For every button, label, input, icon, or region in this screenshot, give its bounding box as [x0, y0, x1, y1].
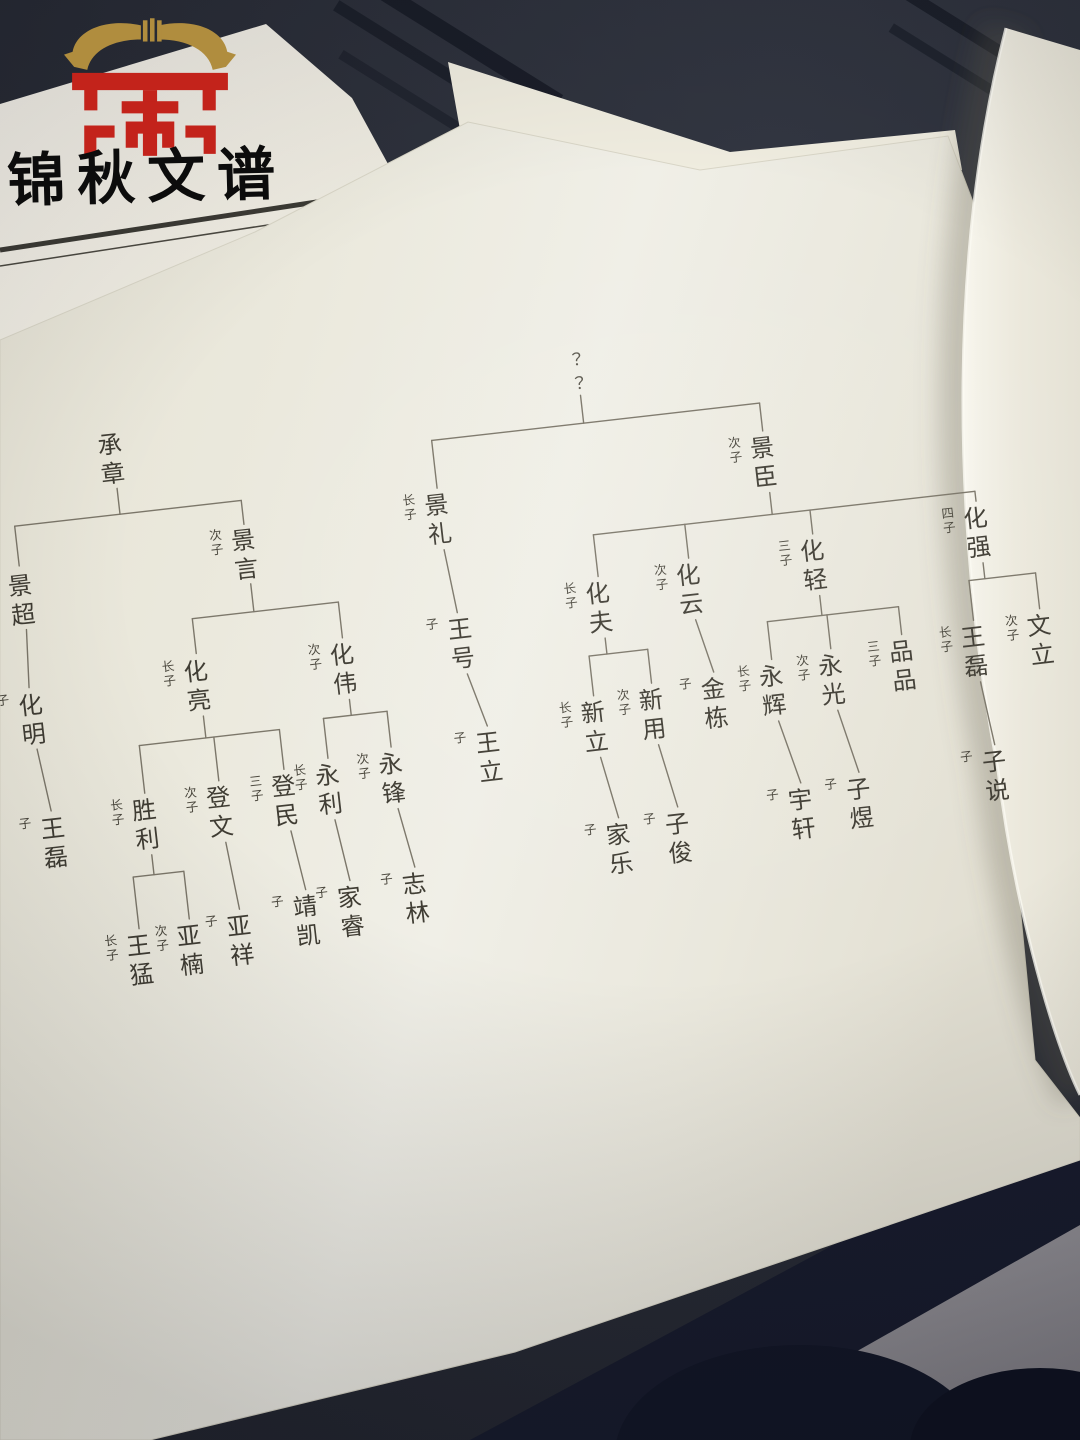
family-connector-line: [323, 711, 387, 718]
family-connector-line: [323, 719, 328, 759]
person-name: 化明: [14, 692, 44, 752]
person-name: 景超: [3, 572, 33, 632]
person-name: 化强: [959, 505, 989, 565]
person-node: 长子化亮: [179, 658, 209, 718]
birth-order-label: 子: [421, 617, 442, 634]
person-name: 家乐: [601, 821, 631, 881]
person-name: 子俊: [660, 810, 690, 870]
family-connector-line: [969, 573, 1036, 581]
family-connector-line: [601, 756, 619, 819]
person-node: 长子化夫: [581, 580, 611, 640]
person-node: 子子说: [977, 748, 1007, 808]
person-name: ？？: [561, 351, 583, 401]
family-connector-line: [1036, 573, 1040, 609]
person-node: 长子景礼: [420, 491, 450, 551]
birth-order-label: 长子: [288, 763, 310, 794]
person-name: 王磊: [956, 624, 986, 684]
person-node: 长子新立: [576, 699, 606, 759]
person-name: 化云: [671, 561, 701, 621]
family-connector-line: [15, 500, 242, 526]
family-connector-line: [133, 877, 139, 929]
person-node: 次子化云: [671, 561, 701, 621]
birth-order-label: 三子: [244, 774, 266, 805]
person-node: 次子亚楠: [172, 922, 202, 982]
person-node: 长子王磊: [956, 624, 986, 684]
person-node: 三子品品: [884, 638, 914, 698]
person-node: 次子景言: [226, 527, 256, 587]
person-node: 长子永利: [311, 762, 341, 822]
person-name: 景臣: [745, 434, 775, 494]
birth-order-label: 次子: [303, 642, 325, 673]
family-connector-line: [593, 491, 975, 534]
birth-order-label: 长子: [559, 581, 581, 612]
family-connector-line: [117, 488, 120, 514]
family-connector-line: [279, 730, 284, 770]
person-name: 品品: [884, 638, 914, 698]
family-connector-line: [820, 596, 822, 616]
person-name: 宇轩: [783, 786, 813, 846]
family-connector-line: [593, 535, 598, 577]
family-connector-line: [898, 607, 901, 635]
family-connector-line: [432, 403, 760, 440]
family-connector-line: [214, 737, 219, 781]
family-connector-line: [139, 746, 144, 794]
person-node: 次子景臣: [745, 434, 775, 494]
birth-order-label: 长子: [398, 493, 420, 524]
family-connector-line: [133, 871, 184, 877]
birth-order-label: 子: [375, 871, 396, 888]
person-name: 新用: [634, 686, 664, 746]
person-name: 志林: [397, 870, 427, 930]
birth-order-label: 子: [819, 777, 840, 794]
birth-order-label: 子: [0, 693, 12, 710]
person-node: 子志林: [397, 870, 427, 930]
person-name: 永锋: [374, 750, 404, 810]
person-node: 景超: [3, 572, 33, 632]
person-node: 次子化伟: [325, 641, 355, 701]
family-connector-line: [192, 602, 338, 619]
family-connector-line: [981, 681, 995, 745]
birth-order-label: 长子: [554, 700, 576, 731]
person-name: 景礼: [420, 491, 450, 551]
birth-order-label: 子: [200, 914, 221, 931]
family-connector-line: [605, 638, 607, 654]
family-connector-line: [810, 510, 813, 534]
family-connector-line: [696, 618, 714, 673]
person-node: 子王磊: [36, 815, 66, 875]
person-name: 永辉: [754, 663, 784, 723]
family-connector-line: [444, 549, 457, 613]
person-name: 化轻: [795, 537, 825, 597]
family-connector-line: [349, 699, 351, 715]
person-node: 次子文立: [1022, 612, 1052, 672]
person-name: 胜利: [127, 797, 157, 857]
person-node: 子子俊: [660, 810, 690, 870]
person-name: 永利: [311, 762, 341, 822]
person-node: 子金栋: [696, 675, 726, 735]
unknown-ancestor-node: ？？: [561, 351, 583, 401]
birth-order-label: 子: [579, 822, 600, 839]
family-connector-line: [139, 730, 279, 746]
birth-order-label: 次子: [1000, 613, 1022, 644]
birth-order-label: 长子: [157, 659, 179, 690]
person-name: 亚楠: [172, 922, 202, 982]
birth-order-label: 子: [955, 749, 976, 766]
family-connector-line: [338, 602, 342, 638]
family-connector-line: [770, 493, 772, 515]
person-node: 次子新用: [634, 686, 664, 746]
birth-order-label: 次子: [352, 751, 374, 782]
person-node: 子亚祥: [222, 913, 252, 973]
birth-order-label: 子: [761, 787, 782, 804]
person-node: 子子煜: [842, 776, 872, 836]
birth-order-label: 子: [674, 676, 695, 693]
family-connector-line: [767, 622, 771, 660]
family-connector-line: [152, 855, 154, 875]
family-connector-line: [251, 584, 254, 612]
person-node: 三子化轻: [795, 537, 825, 597]
family-connector-line: [226, 842, 240, 910]
person-name: 王立: [471, 729, 501, 789]
family-connector-line: [589, 656, 594, 696]
birth-order-label: 次子: [723, 435, 745, 466]
birth-order-label: 三子: [773, 538, 795, 569]
person-node: 子靖凯: [288, 893, 318, 953]
birth-order-label: 长子: [105, 798, 127, 829]
birth-order-label: 长子: [934, 625, 956, 656]
birth-order-label: 四子: [937, 506, 959, 537]
birth-order-label: 次子: [649, 562, 671, 593]
person-node: 子家睿: [333, 884, 363, 944]
family-connector-line: [387, 711, 391, 747]
person-name: 化伟: [325, 641, 355, 701]
family-connector-line: [975, 491, 976, 501]
family-connector-line: [184, 871, 189, 919]
birth-order-label: 次子: [150, 923, 172, 954]
birth-order-label: 子: [14, 816, 35, 833]
family-connector-line: [581, 395, 584, 423]
person-name: 子说: [977, 748, 1007, 808]
person-name: 登文: [201, 784, 231, 844]
family-connector-line: [398, 807, 415, 868]
brand-logo-text: 锦秋文谱: [6, 125, 348, 218]
family-connector-line: [291, 830, 306, 891]
family-connector-line: [37, 748, 51, 811]
person-name: 承章: [93, 431, 123, 491]
person-name: 靖凯: [288, 893, 318, 953]
person-name: 新立: [576, 699, 606, 759]
person-name: 子煜: [842, 776, 872, 836]
family-connector-line: [838, 709, 859, 774]
person-name: 文立: [1022, 612, 1052, 672]
brand-watermark: 锦秋文谱: [0, 0, 360, 230]
family-connector-line: [659, 743, 678, 808]
family-connector-line: [192, 619, 196, 654]
person-name: 化亮: [179, 658, 209, 718]
family-connector-line: [648, 649, 652, 683]
birth-order-label: 次子: [612, 688, 634, 719]
photo-scene: 承章景超次子景言子化明子王磊长子化亮次子化伟长子胜利次子登文三子登民长子永利次子…: [0, 0, 1080, 1440]
family-connector-line: [241, 500, 244, 524]
birth-order-label: 子: [638, 811, 659, 828]
family-connector-line: [589, 649, 648, 656]
birth-order-label: 次子: [179, 785, 201, 816]
person-node: 子化明: [14, 692, 44, 752]
person-name: 化夫: [581, 580, 611, 640]
person-node: 次子登文: [201, 784, 231, 844]
person-node: 承章: [93, 431, 123, 491]
person-name: 景言: [226, 527, 256, 587]
birth-order-label: 次子: [791, 653, 813, 684]
birth-order-label: 长子: [732, 664, 754, 695]
family-connector-line: [983, 563, 985, 579]
family-connector-line: [203, 716, 205, 738]
family-connector-line: [827, 615, 831, 649]
family-connector-line: [467, 672, 487, 727]
person-node: 长子永辉: [754, 663, 784, 723]
person-node: 次子永光: [813, 652, 843, 712]
family-connector-line: [969, 581, 974, 621]
family-connector-line: [760, 403, 763, 431]
family-connector-line: [685, 524, 689, 558]
person-name: 王猛: [122, 932, 152, 992]
person-node: 子王号: [443, 616, 473, 676]
family-connector-line: [22, 630, 33, 688]
family-connector-line: [432, 440, 437, 488]
person-name: 永光: [813, 652, 843, 712]
person-node: 子宇轩: [783, 786, 813, 846]
family-connector-line: [15, 526, 20, 566]
family-connector-line: [767, 607, 898, 622]
person-node: 子家乐: [601, 821, 631, 881]
family-connector-line: [335, 819, 350, 882]
person-node: 长子王猛: [122, 932, 152, 992]
birth-order-label: 子: [449, 730, 470, 747]
person-name: 家睿: [333, 884, 363, 944]
birth-order-label: 子: [310, 885, 331, 902]
person-name: 王磊: [36, 815, 66, 875]
person-name: 金栋: [696, 675, 726, 735]
birth-order-label: 子: [266, 894, 287, 911]
birth-order-label: 次子: [204, 528, 226, 559]
person-node: 次子永锋: [374, 750, 404, 810]
family-connector-line: [779, 719, 801, 784]
birth-order-label: 长子: [100, 933, 122, 964]
person-name: 亚祥: [222, 913, 252, 973]
person-node: 长子胜利: [127, 797, 157, 857]
person-node: 四子化强: [959, 505, 989, 565]
birth-order-label: 三子: [862, 639, 884, 670]
person-name: 王号: [443, 616, 473, 676]
person-node: 子王立: [471, 729, 501, 789]
